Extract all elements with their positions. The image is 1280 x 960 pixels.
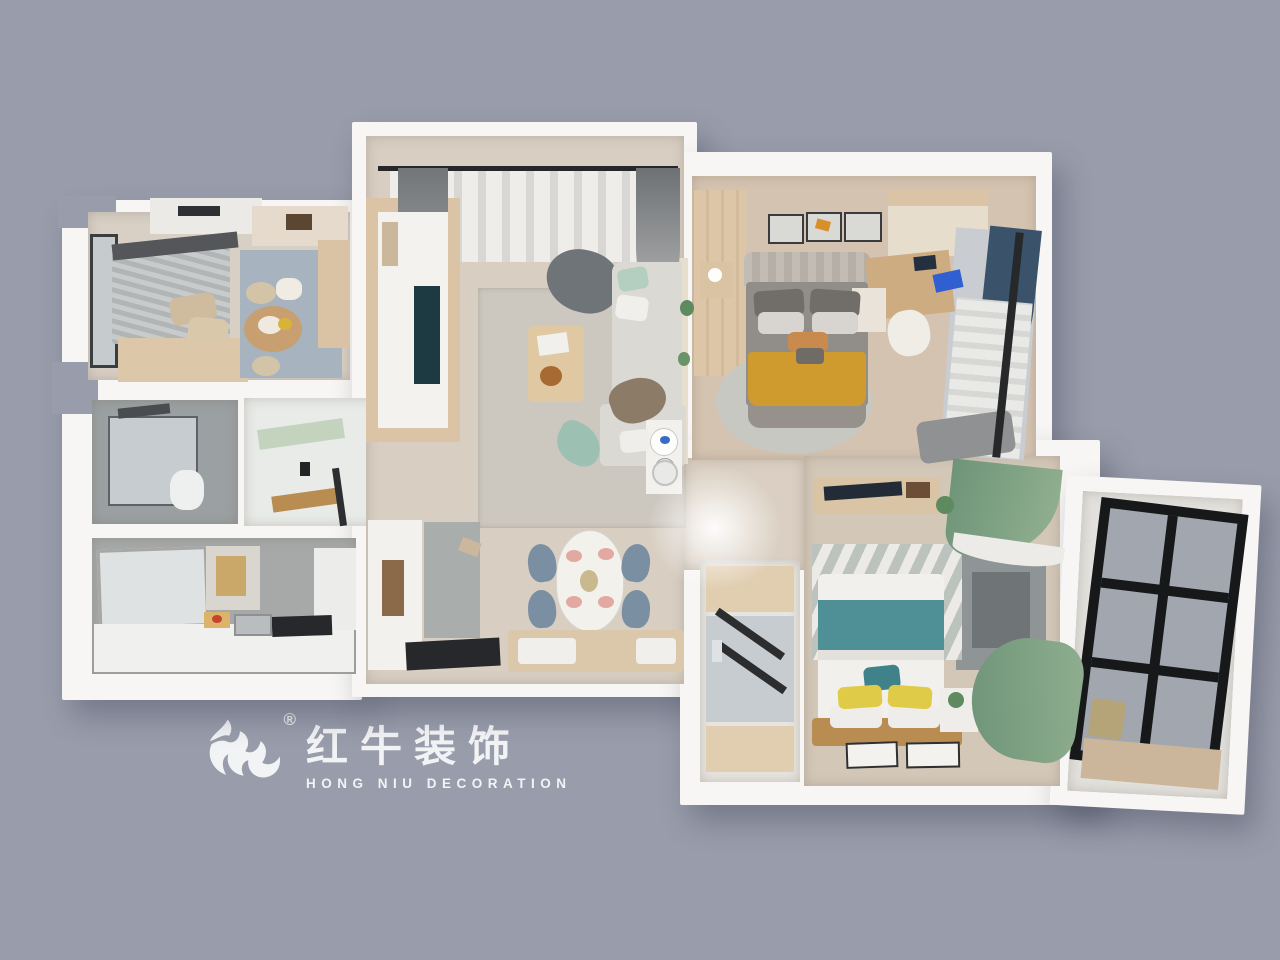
vanity-faucet	[300, 462, 310, 476]
study-pouf-2	[252, 356, 280, 376]
study-top-cabinet-slot	[178, 206, 220, 216]
shoe-cabinet-niche	[382, 560, 404, 616]
b2-yellow-pillow-2	[887, 684, 932, 709]
b2-picture-1	[846, 741, 899, 769]
dining-centerpiece	[580, 570, 598, 592]
mb-pillow-white-1	[758, 312, 804, 334]
console-plant-1	[680, 300, 694, 316]
coffee-table-magazine	[537, 332, 569, 356]
hongniu-bull-logo-icon: ®	[200, 708, 292, 808]
mb-cushion-small	[796, 348, 824, 364]
brand-name-english: HONG NIU DECORATION	[306, 776, 572, 791]
console-plant-2	[678, 352, 690, 366]
mb-picture-1	[768, 214, 804, 244]
hall-light-flare	[648, 466, 782, 590]
brand-name-chinese: 红牛装饰	[306, 725, 572, 769]
bench-cushion-1	[518, 638, 576, 664]
b2-teal-stripe	[818, 600, 944, 650]
dining-plate-4	[598, 596, 614, 608]
storage-wood-bottom	[706, 726, 794, 772]
mb-picture-3	[844, 212, 882, 242]
dining-chair-4	[621, 589, 652, 629]
study-pillow-2	[187, 316, 229, 345]
study-chair	[276, 278, 302, 300]
storage-bottle	[712, 640, 722, 662]
balcony-basket	[1088, 698, 1127, 740]
doormat	[405, 638, 500, 671]
dining-plate-2	[598, 548, 614, 560]
kitchen-vegetables	[212, 615, 222, 623]
tv-decor	[382, 222, 398, 266]
b2-white-pillow-2	[888, 706, 940, 728]
hall-basin-cups	[660, 436, 670, 444]
floorplan-render: ® 红牛装饰 HONG NIU DECORATION	[0, 0, 1280, 960]
dining-plate-1	[566, 550, 582, 562]
coffee-table-flowers	[540, 366, 562, 386]
bath-toilet	[170, 470, 204, 510]
b2-bedside-plant	[948, 692, 964, 708]
kitchen-shelf-items	[216, 556, 246, 596]
study-cabinet	[118, 338, 248, 382]
study-pouf-1	[246, 282, 276, 304]
study-flowers	[278, 318, 292, 330]
b2-yellow-pillow-1	[837, 684, 882, 709]
registered-trademark-icon: ®	[283, 710, 296, 730]
mb-books	[913, 255, 936, 271]
b2-white-pillow-1	[830, 706, 882, 728]
sofa-pillow-white	[614, 294, 649, 322]
study-books	[286, 214, 312, 230]
b2-picture-2	[906, 742, 960, 769]
bench-cushion-2	[636, 638, 676, 664]
tv-screen	[414, 286, 440, 384]
dining-plate-3	[566, 596, 582, 608]
mb-pillow-white-2	[812, 312, 858, 334]
kitchen-window	[97, 546, 210, 630]
sofa-pillow-white-2	[619, 428, 651, 453]
study-side-desk	[318, 240, 350, 348]
brand-logo: ® 红牛装饰 HONG NIU DECORATION	[200, 708, 572, 808]
b2-shelf-box	[906, 482, 930, 498]
mb-top-cabinet-wood	[888, 190, 988, 206]
b2-tile-inner	[972, 572, 1030, 648]
mb-lamp	[708, 268, 722, 282]
kitchen-stove	[272, 615, 333, 637]
kitchen-sink	[234, 614, 272, 636]
study-top-cabinet	[150, 198, 262, 234]
b2-duvet-fold	[818, 650, 944, 660]
b2-plant-top	[936, 496, 954, 514]
mb-headboard	[744, 252, 870, 286]
